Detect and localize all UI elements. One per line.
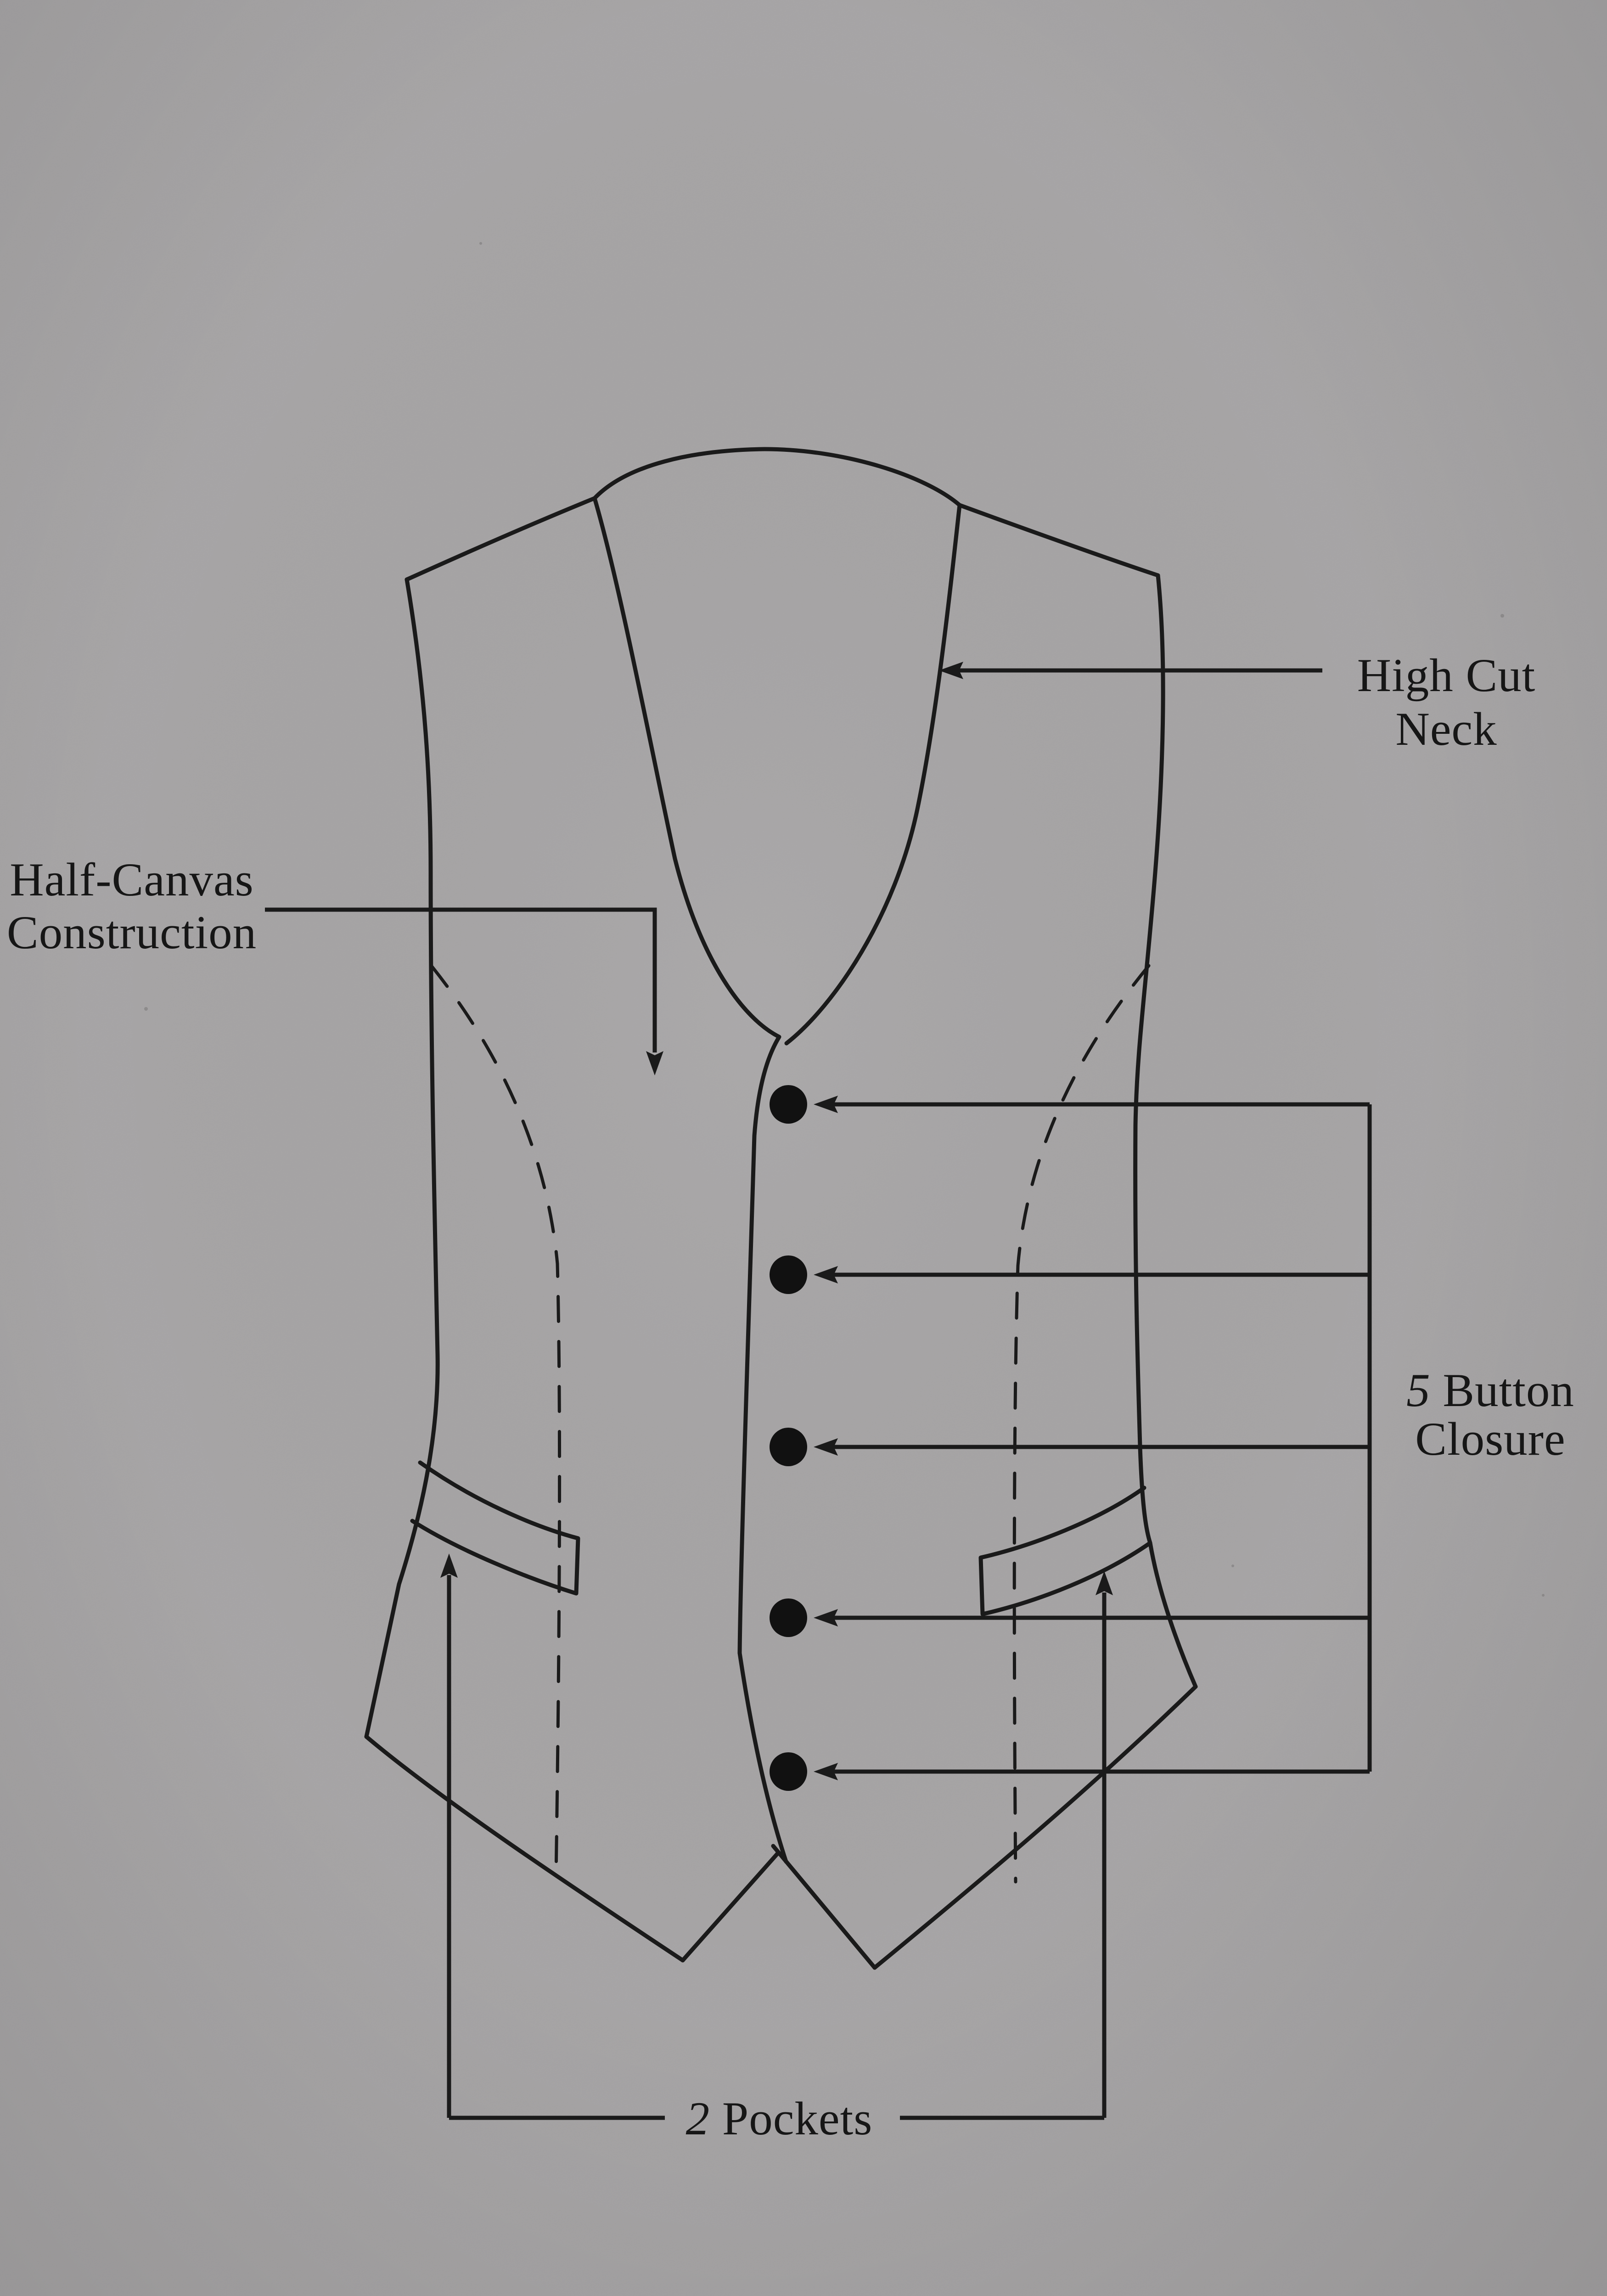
five-button-label-number: 5 bbox=[1406, 1364, 1431, 1417]
dust-speck bbox=[1542, 1594, 1545, 1597]
dust-speck bbox=[1500, 614, 1504, 618]
button-5 bbox=[770, 1752, 807, 1791]
five-button-label-word: Button bbox=[1431, 1364, 1574, 1417]
dust-speck bbox=[479, 242, 482, 245]
button-3 bbox=[770, 1428, 807, 1466]
half-canvas-label-line1: Half-Canvas bbox=[10, 854, 254, 906]
button-1 bbox=[770, 1085, 807, 1124]
high-cut-neck-label-line2: Neck bbox=[1395, 703, 1497, 755]
button-2 bbox=[770, 1255, 807, 1294]
dust-speck bbox=[144, 1007, 148, 1011]
button-4 bbox=[770, 1598, 807, 1637]
background-grain bbox=[0, 0, 1607, 2296]
vest-diagram-photo: High Cut Neck Half-Canvas Construction 5… bbox=[0, 0, 1607, 2296]
high-cut-neck-label-line1: High Cut bbox=[1357, 649, 1536, 702]
two-pockets-label: 2 Pockets bbox=[686, 2093, 873, 2145]
diagram-canvas: High Cut Neck Half-Canvas Construction 5… bbox=[0, 0, 1607, 2296]
five-button-label-line2: Closure bbox=[1415, 1413, 1565, 1465]
half-canvas-label-line2: Construction bbox=[7, 906, 257, 959]
dust-speck bbox=[1231, 1564, 1234, 1567]
two-pockets-label-number: 2 bbox=[686, 2093, 710, 2145]
five-button-label-line1: 5 Button bbox=[1406, 1364, 1574, 1417]
two-pockets-label-word: Pockets bbox=[710, 2093, 872, 2145]
